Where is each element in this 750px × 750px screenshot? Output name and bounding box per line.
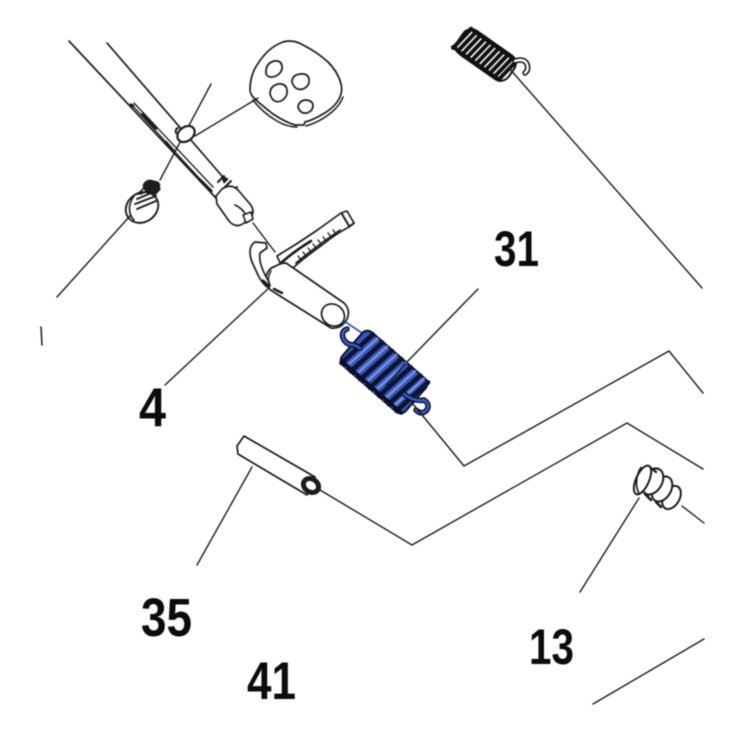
svg-text:31: 31 <box>494 221 539 277</box>
svg-text:4: 4 <box>139 376 166 438</box>
svg-text:13: 13 <box>529 619 574 675</box>
svg-text:35: 35 <box>141 588 192 648</box>
svg-text:41: 41 <box>247 652 296 711</box>
